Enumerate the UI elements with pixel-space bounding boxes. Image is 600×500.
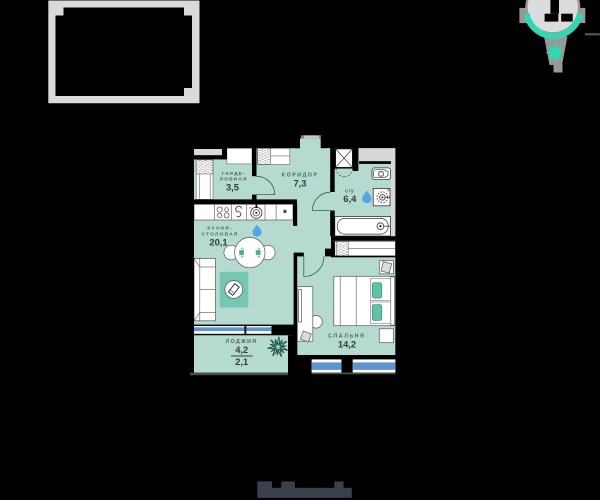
svg-text:3,5: 3,5 [226, 182, 239, 193]
svg-text:4,2: 4,2 [235, 345, 248, 355]
svg-text:14,2: 14,2 [338, 339, 356, 350]
svg-text:6,4: 6,4 [343, 193, 357, 204]
svg-text:2,1: 2,1 [235, 357, 248, 367]
svg-text:ГАРДЕ-: ГАРДЕ- [222, 171, 246, 177]
svg-text:КУХНЯ-: КУХНЯ- [207, 226, 232, 232]
svg-text:7,3: 7,3 [293, 177, 306, 188]
svg-text:20,1: 20,1 [209, 237, 227, 248]
svg-text:м: м [250, 206, 252, 210]
